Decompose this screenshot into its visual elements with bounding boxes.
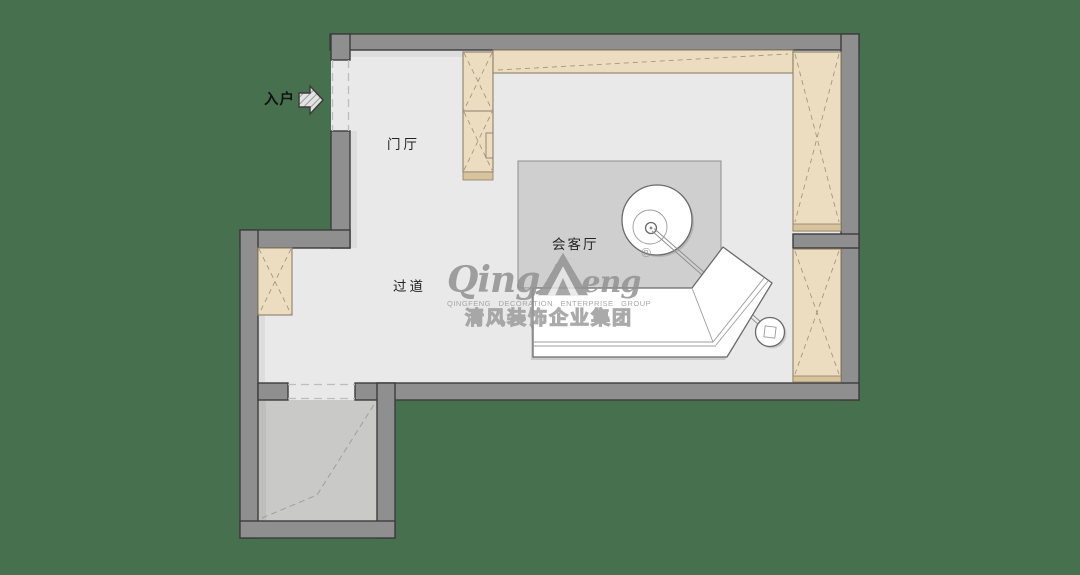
floor-plan-drawing xyxy=(0,0,1080,575)
label-living-room: 会客厅 xyxy=(552,233,599,253)
wall-lower-room-bottom xyxy=(240,521,395,538)
wall-stub-right xyxy=(793,234,859,248)
entry-threshold-floor xyxy=(331,60,350,131)
label-corridor: 过道 xyxy=(393,275,426,295)
floor-shade-left xyxy=(350,131,357,248)
wall-lower-room-right xyxy=(377,383,395,538)
passage-floor xyxy=(288,383,355,400)
top-wall-cabinet xyxy=(493,50,793,73)
floor-plan-canvas: 入户 门厅 过道 会客厅 Qing eng ® QINGFENG DECORAT… xyxy=(0,0,1080,575)
entry-arrow-icon xyxy=(299,86,323,114)
right-lower-cabinet xyxy=(793,249,841,382)
right-upper-cabinet-base xyxy=(793,224,841,231)
wall-west xyxy=(240,230,258,538)
right-upper-cabinet xyxy=(793,52,841,231)
wall-top xyxy=(330,34,859,50)
wall-left-above-door xyxy=(331,34,350,60)
lamp-shade-dot xyxy=(650,227,653,230)
wall-bottom-main xyxy=(355,383,859,400)
label-foyer: 门厅 xyxy=(387,133,420,153)
floor-shade-lower-room xyxy=(258,400,266,522)
round-table xyxy=(622,185,692,255)
corridor-cabinet xyxy=(258,248,292,315)
floor-lamp-base xyxy=(756,318,785,347)
entry-cabinet xyxy=(463,52,493,180)
label-entry: 入户 xyxy=(264,88,295,109)
right-lower-cabinet-base xyxy=(793,376,841,382)
wall-stub-lower-left xyxy=(258,383,288,400)
lower-room-floor xyxy=(258,400,377,522)
entry-cabinet-base xyxy=(463,172,493,180)
wall-right xyxy=(841,34,859,400)
